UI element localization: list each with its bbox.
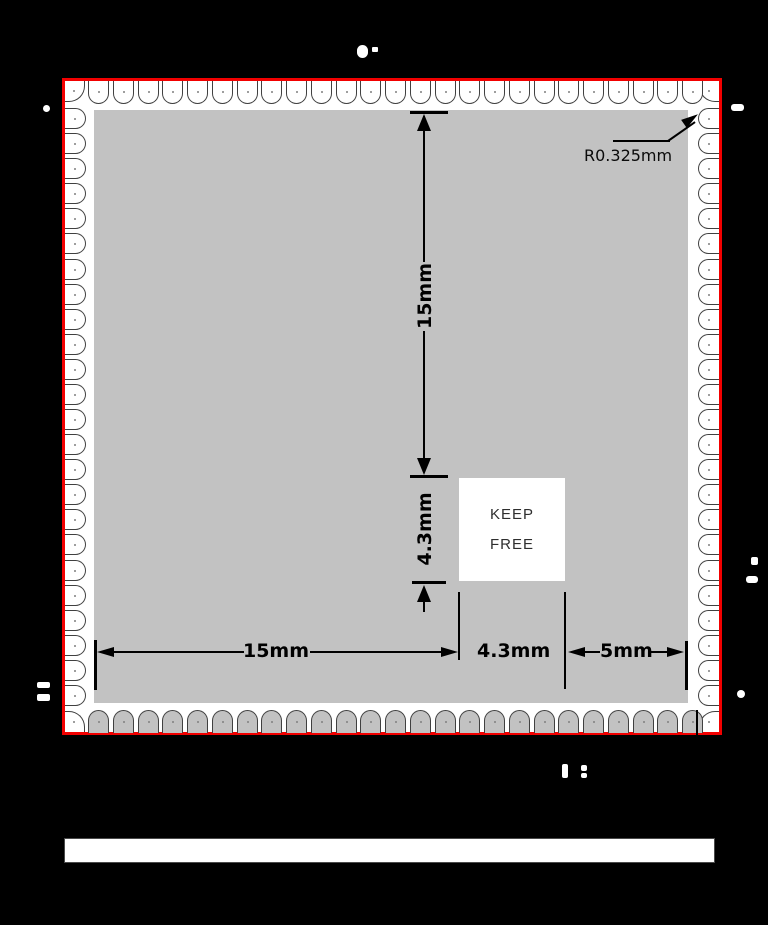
castellated-pad-right: [698, 259, 719, 280]
pad-drill-dot: [395, 721, 397, 723]
castellated-pad-bottom: [435, 710, 456, 733]
castellated-pad-bottom: [113, 710, 134, 733]
pad-drill-dot: [708, 369, 710, 371]
castellated-pad-right: [698, 635, 719, 656]
castellated-pad-left: [65, 459, 86, 480]
castellated-pad-left: [65, 585, 86, 606]
pad-drill-dot: [74, 670, 76, 672]
pad-drill-dot: [708, 494, 710, 496]
pad-drill-dot: [519, 91, 521, 93]
castellated-pad-left: [65, 108, 86, 129]
pad-drill-dot: [98, 91, 100, 93]
pad-drill-dot: [74, 269, 76, 271]
castellated-pad-bottom: [286, 710, 307, 733]
dim-tick-middle: [410, 475, 448, 478]
pad-drill-dot: [643, 721, 645, 723]
drawing-canvas: 15mm 4.3mm KEEP FREE 15mm 4.3mm 5mm R0.3…: [0, 0, 768, 925]
dim-line-horizontal-15mm-right: [310, 651, 442, 653]
castellated-pad-top: [113, 81, 134, 104]
pad-drill-dot: [271, 91, 273, 93]
extension-line-right: [564, 592, 566, 689]
dim-label-horizontal-15mm: 15mm: [240, 640, 312, 662]
dim-line-horizontal-5mm-right: [648, 651, 667, 653]
castellated-pad-right: [698, 585, 719, 606]
extension-line-left: [458, 592, 460, 660]
pad-drill-dot: [643, 91, 645, 93]
castellated-pad-top: [162, 81, 183, 104]
castellated-pad-top: [534, 81, 555, 104]
pad-drill-dot: [708, 645, 710, 647]
pad-drill-dot: [247, 91, 249, 93]
pad-drill-dot: [544, 91, 546, 93]
artifact-dot: [372, 47, 378, 52]
pad-drill-dot: [667, 721, 669, 723]
pad-drill-dot: [469, 91, 471, 93]
castellated-pad-right: [698, 334, 719, 355]
keep-free-label-line1: KEEP: [490, 506, 534, 523]
pad-drill-dot: [74, 118, 76, 120]
module-body: [94, 110, 688, 703]
castellated-pad-top: [435, 81, 456, 104]
castellated-pad-top: [484, 81, 505, 104]
castellated-pad-right: [698, 384, 719, 405]
castellated-pad-left: [65, 560, 86, 581]
castellated-pad-right: [698, 309, 719, 330]
castellated-pad-top: [187, 81, 208, 104]
bottom-label-bar: [64, 838, 715, 863]
castellated-pad-bottom: [237, 710, 258, 733]
pad-drill-dot: [494, 91, 496, 93]
artifact-dot: [746, 576, 758, 583]
castellated-pad-bottom: [558, 710, 579, 733]
castellated-pad-bottom: [336, 710, 357, 733]
keep-free-label-line2: FREE: [490, 536, 534, 553]
pad-drill-dot: [618, 91, 620, 93]
pad-drill-dot: [148, 91, 150, 93]
castellated-pad-left: [65, 158, 86, 179]
dim-arrow-down-icon: [417, 458, 431, 475]
pad-drill-dot: [445, 91, 447, 93]
dim-arrow-stem: [423, 598, 425, 612]
dim-arrow-right-icon: [441, 647, 458, 657]
pad-drill-dot: [708, 620, 710, 622]
castellated-pad-left: [65, 133, 86, 154]
castellated-pad-left: [65, 208, 86, 229]
pad-drill-dot: [445, 721, 447, 723]
castellated-pad-left: [65, 434, 86, 455]
pad-drill-dot: [708, 670, 710, 672]
castellated-pad-top: [261, 81, 282, 104]
dim-line-vertical-15mm-lower: [423, 331, 425, 459]
pad-drill-dot: [346, 721, 348, 723]
castellated-pad-right: [698, 509, 719, 530]
castellated-pad-right: [698, 534, 719, 555]
castellated-pad-bottom: [88, 710, 109, 733]
pad-drill-dot: [568, 91, 570, 93]
pad-drill-dot: [74, 143, 76, 145]
castellated-pad-right: [698, 359, 719, 380]
pad-drill-dot: [74, 444, 76, 446]
castellated-pad-left: [65, 409, 86, 430]
pad-drill-dot: [74, 243, 76, 245]
castellated-pad-right: [698, 208, 719, 229]
castellated-pad-bottom: [682, 710, 703, 733]
artifact-dot: [37, 694, 50, 701]
dim-label-horizontal-5mm: 5mm: [600, 640, 648, 662]
castellated-pad-bottom: [261, 710, 282, 733]
castellated-pad-right: [698, 560, 719, 581]
castellated-pad-bottom: [410, 710, 431, 733]
pad-drill-dot: [123, 721, 125, 723]
castellated-pad-left: [65, 233, 86, 254]
castellated-pad-right: [698, 685, 719, 706]
pad-drill-dot: [172, 721, 174, 723]
castellated-pad-top: [583, 81, 604, 104]
castellated-pad-left: [65, 509, 86, 530]
pad-drill-dot: [74, 620, 76, 622]
pad-drill-dot: [708, 168, 710, 170]
castellated-pad-bottom: [360, 710, 381, 733]
pad-drill-dot: [708, 218, 710, 220]
pad-drill-dot: [708, 193, 710, 195]
pad-drill-dot: [395, 91, 397, 93]
castellated-pad-right: [698, 133, 719, 154]
castellated-pad-top: [286, 81, 307, 104]
castellated-pad-left: [65, 685, 86, 706]
dim-line-horizontal-15mm-left: [112, 651, 244, 653]
pad-drill-dot: [74, 519, 76, 521]
pad-drill-dot: [370, 721, 372, 723]
pad-drill-dot: [593, 91, 595, 93]
castellated-pad-bottom: [162, 710, 183, 733]
pad-drill-dot: [708, 90, 710, 92]
pad-drill-dot: [271, 721, 273, 723]
dim-label-horizontal-4-3mm: 4.3mm: [477, 640, 547, 662]
pad-drill-dot: [667, 91, 669, 93]
pad-drill-dot: [321, 721, 323, 723]
pad-drill-dot: [708, 394, 710, 396]
dim-arrow-right-icon: [667, 647, 684, 657]
pad-drill-dot: [73, 90, 75, 92]
artifact-dot: [737, 690, 745, 698]
pad-drill-dot: [708, 118, 710, 120]
castellated-pad-right: [698, 409, 719, 430]
pad-drill-dot: [708, 519, 710, 521]
pad-drill-dot: [708, 544, 710, 546]
pad-drill-dot: [74, 369, 76, 371]
leader-line-horizontal: [613, 140, 670, 142]
artifact-dot: [43, 105, 50, 112]
pad-drill-dot: [708, 269, 710, 271]
pad-drill-dot: [74, 218, 76, 220]
artifact-dot: [357, 45, 368, 58]
pad-drill-dot: [74, 695, 76, 697]
pad-drill-dot: [74, 344, 76, 346]
castellated-pad-bottom: [633, 710, 654, 733]
pad-drill-dot: [74, 168, 76, 170]
castellated-pad-top: [311, 81, 332, 104]
castellated-pad-left: [65, 610, 86, 631]
castellated-pad-bottom: [187, 710, 208, 733]
pad-drill-dot: [296, 91, 298, 93]
pad-drill-dot: [568, 721, 570, 723]
pad-drill-dot: [197, 91, 199, 93]
pad-drill-dot: [692, 91, 694, 93]
pad-drill-dot: [708, 344, 710, 346]
pad-drill-dot: [74, 570, 76, 572]
pad-drill-dot: [74, 319, 76, 321]
pad-drill-dot: [222, 91, 224, 93]
pad-drill-dot: [370, 91, 372, 93]
castellated-pad-top: [657, 81, 678, 104]
castellated-pad-right: [698, 108, 719, 129]
artifact-dot: [562, 764, 568, 778]
dim-label-vertical-4-3mm: 4.3mm: [414, 492, 436, 565]
castellated-pad-bottom: [583, 710, 604, 733]
castellated-pad-top: [212, 81, 233, 104]
castellated-pad-right: [698, 660, 719, 681]
castellated-pad-left: [65, 259, 86, 280]
castellated-pad-left: [65, 359, 86, 380]
pad-drill-dot: [74, 494, 76, 496]
castellated-pad-top: [336, 81, 357, 104]
artifact-dot: [37, 682, 50, 688]
pad-drill-dot: [708, 469, 710, 471]
pad-drill-dot: [708, 243, 710, 245]
castellated-pad-top: [88, 81, 109, 104]
pad-drill-dot: [321, 91, 323, 93]
castellated-pad-right: [698, 183, 719, 204]
pad-drill-dot: [544, 721, 546, 723]
castellated-pad-bottom: [385, 710, 406, 733]
pad-drill-dot: [73, 721, 75, 723]
pad-drill-dot: [708, 695, 710, 697]
castellated-pad-left: [65, 660, 86, 681]
pad-radius-label: R0.325mm: [584, 146, 672, 165]
castellated-pad-right: [698, 284, 719, 305]
castellated-pad-right: [698, 233, 719, 254]
castellated-pad-left: [65, 183, 86, 204]
pad-drill-dot: [692, 721, 694, 723]
pad-drill-dot: [618, 721, 620, 723]
castellated-pad-bottom: [534, 710, 555, 733]
castellated-pad-left: [65, 334, 86, 355]
pad-drill-dot: [708, 444, 710, 446]
pad-drill-dot: [420, 91, 422, 93]
pad-drill-dot: [708, 419, 710, 421]
pad-drill-dot: [197, 721, 199, 723]
castellated-pad-top: [410, 81, 431, 104]
dim-tick-bottom: [412, 581, 446, 584]
pad-drill-dot: [346, 91, 348, 93]
castellated-pad-top: [237, 81, 258, 104]
castellated-pad-bottom: [608, 710, 629, 733]
castellated-pad-bottom: [484, 710, 505, 733]
castellated-pad-bottom: [509, 710, 530, 733]
pad-drill-dot: [74, 645, 76, 647]
pad-drill-dot: [296, 721, 298, 723]
dim-line-vertical-15mm-upper: [423, 116, 425, 262]
pad-drill-dot: [708, 294, 710, 296]
castellated-pad-top: [509, 81, 530, 104]
dim-tick-right: [685, 641, 688, 690]
castellated-pad-top: [459, 81, 480, 104]
castellated-pad-bottom: [311, 710, 332, 733]
castellated-pad-bottom: [212, 710, 233, 733]
castellated-pad-right: [698, 434, 719, 455]
castellated-pad-bottom: [459, 710, 480, 733]
pad-drill-dot: [469, 721, 471, 723]
pad-drill-dot: [708, 721, 710, 723]
pad-drill-dot: [148, 721, 150, 723]
pad-drill-dot: [74, 294, 76, 296]
castellated-pad-right: [698, 484, 719, 505]
pad-drill-dot: [519, 721, 521, 723]
castellated-pad-left: [65, 284, 86, 305]
pad-drill-dot: [222, 721, 224, 723]
pad-drill-dot: [494, 721, 496, 723]
pad-drill-dot: [74, 595, 76, 597]
castellated-pad-left: [65, 534, 86, 555]
castellated-pad-right: [698, 459, 719, 480]
pad-drill-dot: [420, 721, 422, 723]
pad-drill-dot: [593, 721, 595, 723]
pad-drill-dot: [172, 91, 174, 93]
castellated-pad-top: [633, 81, 654, 104]
pad-drill-dot: [74, 419, 76, 421]
dim-label-vertical-15mm: 15mm: [414, 263, 436, 329]
pad-drill-dot: [74, 394, 76, 396]
castellated-pad-top: [360, 81, 381, 104]
pad-drill-dot: [247, 721, 249, 723]
pad-drill-dot: [708, 143, 710, 145]
pad-drill-dot: [74, 193, 76, 195]
castellated-pad-left: [65, 484, 86, 505]
castellated-pad-top: [558, 81, 579, 104]
pad-drill-dot: [708, 570, 710, 572]
artifact-dot: [581, 773, 587, 778]
castellated-pad-bottom: [138, 710, 159, 733]
artifact-dot: [731, 104, 744, 111]
castellated-pad-bottom: [657, 710, 678, 733]
dim-line-horizontal-5mm-left: [583, 651, 600, 653]
keep-free-zone: KEEP FREE: [459, 478, 565, 581]
pad-drill-dot: [98, 721, 100, 723]
artifact-dot: [751, 557, 758, 565]
castellated-pad-left: [65, 384, 86, 405]
castellated-pad-right: [698, 158, 719, 179]
pad-drill-dot: [74, 544, 76, 546]
castellated-pad-left: [65, 635, 86, 656]
castellated-pad-top: [138, 81, 159, 104]
pad-drill-dot: [708, 595, 710, 597]
pad-drill-dot: [708, 319, 710, 321]
corner-cut-line: [696, 710, 698, 736]
castellated-pad-top: [385, 81, 406, 104]
artifact-dot: [581, 765, 587, 771]
pad-drill-dot: [123, 91, 125, 93]
castellated-pad-top: [608, 81, 629, 104]
castellated-pad-top: [682, 81, 703, 104]
pad-drill-dot: [74, 469, 76, 471]
castellated-pad-right: [698, 610, 719, 631]
castellated-pad-left: [65, 309, 86, 330]
